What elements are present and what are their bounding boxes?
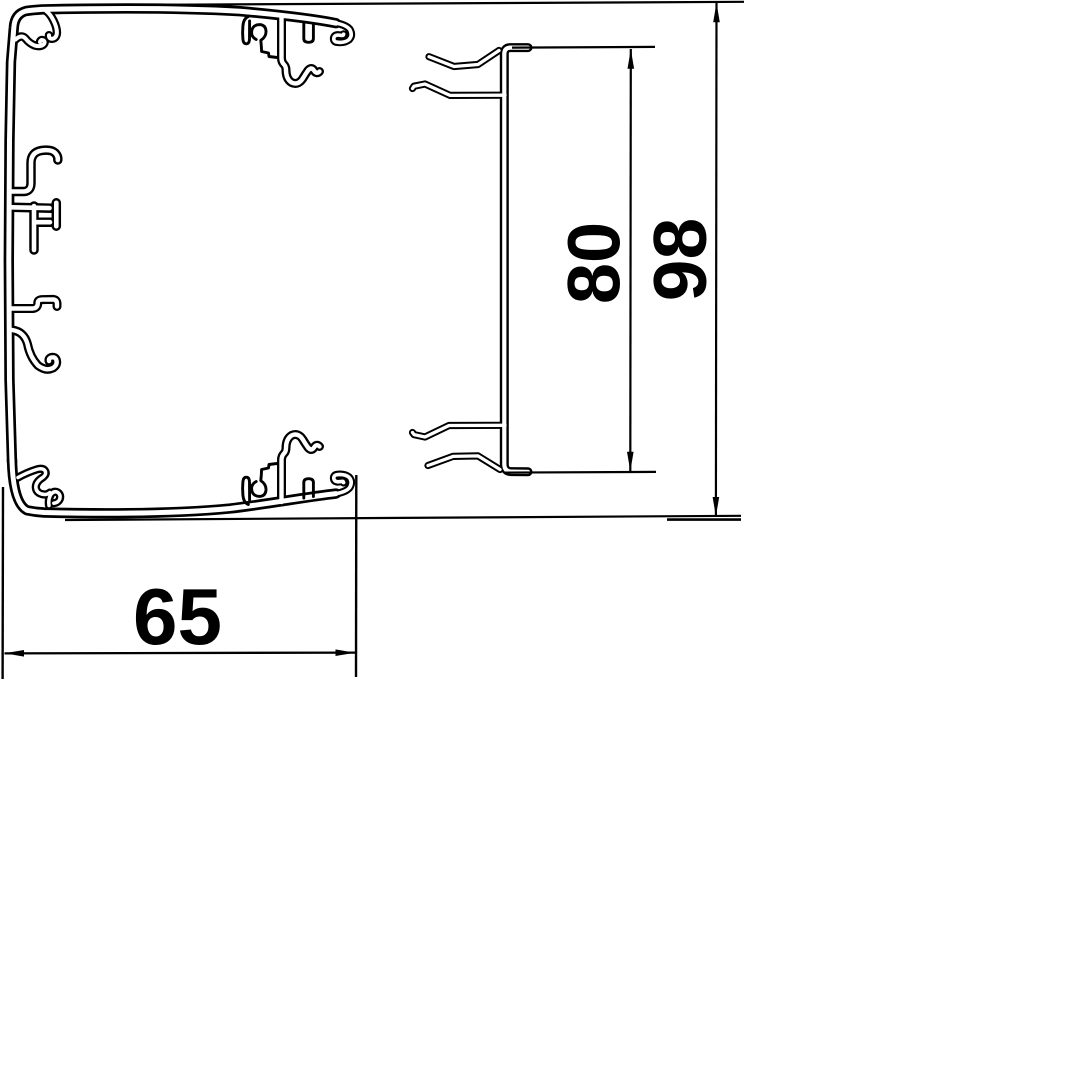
svg-text:65: 65 (133, 572, 222, 661)
svg-text:80: 80 (553, 222, 636, 304)
svg-text:98: 98 (638, 218, 722, 301)
